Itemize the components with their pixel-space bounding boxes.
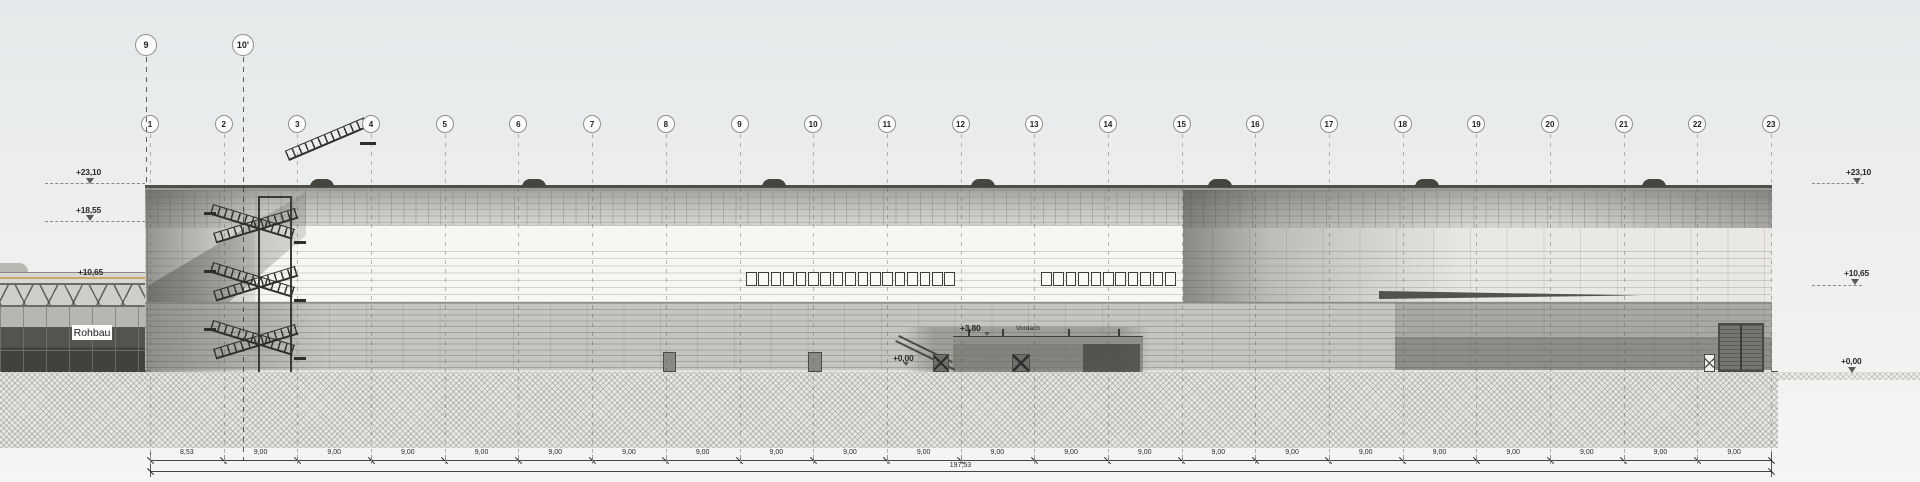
level-left-building: +10,65 [78,267,103,277]
dim-segment-label: 9,00 [224,449,298,456]
window-band-1-pane [796,272,807,286]
level-right-000-marker [1848,367,1856,373]
axis-bubble-3: 3 [288,115,306,133]
roof-dome [310,179,334,187]
axis-line-14 [1108,134,1109,460]
top-axis-bubble-9: 9 [135,34,157,56]
stair-frame-top [258,196,292,198]
window-band-1-pane [895,272,906,286]
section-line-magenta [147,186,148,372]
axis-line-20 [1550,134,1551,460]
window-band-2-pane [1153,272,1164,286]
dock-recess [1083,344,1140,372]
roof-dome [1415,179,1439,187]
door-axis10 [808,352,822,372]
axis-bubble-19: 19 [1467,115,1485,133]
dim-segment-label: 9,00 [518,449,592,456]
axis-line-16 [1255,134,1256,460]
vordach-label: Vordach [1016,325,1040,332]
axis-bubble-10: 10 [804,115,822,133]
window-band-2-pane [1078,272,1089,286]
dock-post-4 [1118,329,1120,336]
window-band-2-pane [1041,272,1052,286]
window-band-1-pane [820,272,831,286]
door-hatch-1 [933,354,949,372]
axis-bubble-22: 22 [1688,115,1706,133]
top-axis-line-9 [146,57,147,185]
window-band-2-pane [1053,272,1064,286]
axis-bubble-6: 6 [509,115,527,133]
window-band-1-pane [920,272,931,286]
roof-stair-platform [360,142,376,145]
dock-post-3 [1068,329,1070,336]
level-right-000: +0,00 [1841,356,1862,366]
axis-line-21 [1624,134,1625,460]
roof-dome [971,179,995,187]
stair-landing [204,328,216,331]
dim-segment-label: 9,00 [1108,449,1182,456]
axis-bubble-4: 4 [362,115,380,133]
axis-bubble-15: 15 [1173,115,1191,133]
ground-hatch-right [1778,372,1920,380]
axis-line-3 [297,134,298,460]
left-roof-accent [0,277,147,279]
window-band-1-pane [771,272,782,286]
axis-line-11 [887,134,888,460]
dim-segment-label: 9,00 [813,449,887,456]
axis-bubble-16: 16 [1246,115,1264,133]
window-band-1-pane [882,272,893,286]
level-left-2310: +23,10 [76,167,101,177]
window-band-2-pane [1140,272,1151,286]
window-band-1-pane [808,272,819,286]
level-left-1855: +18,55 [76,205,101,215]
window-band-2-pane [1115,272,1126,286]
window-band-1-pane [907,272,918,286]
small-door-right [1704,354,1715,372]
level-left-2310-line [45,183,145,184]
dim-segment-label: 9,00 [592,449,666,456]
axis-bubble-13: 13 [1025,115,1043,133]
window-band-1-pane [746,272,757,286]
top-axis-bubble-10': 10' [232,34,254,56]
dim-segment-label: 9,00 [297,449,371,456]
axis-line-15 [1182,134,1183,460]
axis-line-17 [1329,134,1330,460]
left-wall-base-joint [0,350,147,351]
axis-line-10 [813,134,814,460]
window-band-1-pane [858,272,869,286]
axis-line-5 [445,134,446,460]
dim-segment-label: 9,00 [1034,449,1108,456]
axis-line-7 [592,134,593,460]
window-band-1-pane [932,272,943,286]
axis-line-12 [961,134,962,460]
dim-segment-label: 9,00 [1403,449,1477,456]
axis-bubble-23: 23 [1762,115,1780,133]
window-band-1-pane [783,272,794,286]
axis-bubble-9: 9 [731,115,749,133]
axis-line-8 [666,134,667,460]
dim-segment-label: 9,00 [740,449,814,456]
roof-dome [1642,179,1666,187]
axis-bubble-2: 2 [215,115,233,133]
axis-line-4 [371,134,372,460]
level-right-1065: +10,65 [1844,268,1869,278]
axis-bubble-12: 12 [952,115,970,133]
dim-segment-label: 9,00 [1329,449,1403,456]
dim-segment-label: 9,00 [371,449,445,456]
roof-dome [522,179,546,187]
dim-segment-label: 9,00 [1182,449,1256,456]
window-band-2-pane [1066,272,1077,286]
window-band-1-pane [758,272,769,286]
rohbau-label: Rohbau [74,327,111,339]
axis-bubble-1: 1 [141,115,159,133]
dim-segment-label: 9,00 [445,449,519,456]
ground-hatch [0,372,1778,448]
dock-canopy-slab [953,336,1143,344]
axis-bubble-21: 21 [1615,115,1633,133]
dim-segment-label: 9,00 [887,449,961,456]
dock-post-2 [1002,329,1004,336]
level-right-2310: +23,10 [1846,167,1871,177]
level-dock-ground-marker [903,362,909,366]
level-canopy-marker [984,332,990,336]
stair-landing [294,299,306,302]
level-canopy-top: +3,80 [960,323,981,333]
left-truss-band [0,283,147,307]
level-right-1065-line [1812,285,1862,286]
window-band-1-pane [870,272,881,286]
axis-line-18 [1403,134,1404,460]
stair-landing [204,270,216,273]
window-band-1-pane [845,272,856,286]
elevation-drawing: Rohbau +10,65 [0,0,1920,482]
shade-top-right [1560,190,1772,228]
dim-segment-label: 9,00 [1550,449,1624,456]
level-left-1855-line [45,221,145,222]
rohbau-label-box: Rohbau [72,325,112,340]
window-band-2-pane [1103,272,1114,286]
dim-segment-label: 9,00 [1476,449,1550,456]
window-band-2-pane [1165,272,1176,286]
roof-dome [762,179,786,187]
axis-line-13 [1034,134,1035,460]
window-band-2-pane [1091,272,1102,286]
window-band-1-pane [833,272,844,286]
window-band-2-pane [1128,272,1139,286]
dim-segment-label: 9,00 [1255,449,1329,456]
axis-bubble-14: 14 [1099,115,1117,133]
dim-segment-label: 9,00 [1624,449,1698,456]
axis-bubble-11: 11 [878,115,896,133]
axis-bubble-20: 20 [1541,115,1559,133]
roller-gate-mullion [1740,325,1742,370]
facade-top-band [145,190,1772,228]
axis-bubble-17: 17 [1320,115,1338,133]
window-band-1-pane [944,272,955,286]
axis-bubble-5: 5 [436,115,454,133]
axis-line-22 [1697,134,1698,460]
stair-landing [204,212,216,215]
dim-segment-label: 8,53 [150,449,224,456]
axis-line-23 [1771,134,1772,460]
stair-landing [294,241,306,244]
axis-line-19 [1476,134,1477,460]
dim-segment-label: 9,00 [961,449,1035,456]
axis-bubble-8: 8 [657,115,675,133]
roof-dome [1208,179,1232,187]
stair-landing [294,357,306,360]
dim-segment-label: 9,00 [666,449,740,456]
axis-line-6 [518,134,519,460]
door-hatch-2 [1012,354,1030,372]
level-right-2310-line [1812,183,1864,184]
left-wall-upper [0,307,147,327]
top-axis-line-10' [243,57,244,461]
dim-total-line [150,471,1771,472]
lower-shade-right-base [1395,337,1772,370]
axis-bubble-18: 18 [1394,115,1412,133]
axis-bubble-7: 7 [583,115,601,133]
axis-line-1 [150,134,151,460]
axis-line-9 [740,134,741,460]
dim-segment-label: 9,00 [1697,449,1771,456]
